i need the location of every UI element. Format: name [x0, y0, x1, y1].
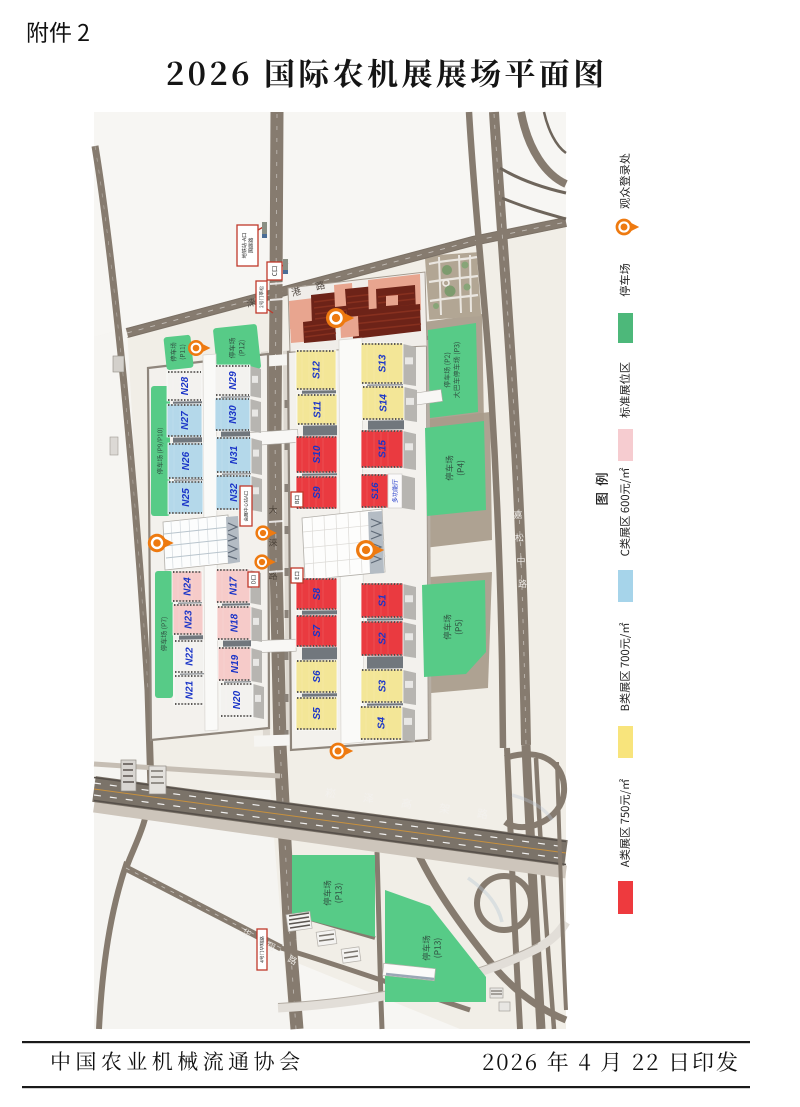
- svg-text:S3: S3: [378, 679, 389, 692]
- svg-text:S5: S5: [312, 707, 323, 720]
- svg-text:S2: S2: [378, 632, 389, 645]
- svg-text:N32: N32: [229, 483, 240, 502]
- svg-text:S4: S4: [377, 716, 388, 729]
- svg-text:S16: S16: [370, 482, 381, 500]
- svg-text:N26: N26: [181, 451, 192, 470]
- svg-text:N28: N28: [180, 376, 191, 395]
- svg-text:N19: N19: [230, 654, 241, 673]
- svg-text:S9: S9: [312, 486, 323, 499]
- svg-text:S1: S1: [378, 594, 389, 607]
- svg-text:N23: N23: [184, 610, 195, 629]
- svg-text:N31: N31: [229, 445, 240, 464]
- svg-text:S13: S13: [378, 354, 389, 372]
- svg-text:N30: N30: [228, 405, 239, 424]
- svg-text:N22: N22: [185, 647, 196, 666]
- svg-text:N25: N25: [181, 488, 192, 507]
- svg-text:S10: S10: [312, 445, 323, 463]
- svg-text:N27: N27: [180, 411, 191, 430]
- svg-text:S6: S6: [312, 670, 323, 683]
- svg-text:S12: S12: [312, 361, 323, 379]
- svg-text:N18: N18: [230, 613, 241, 632]
- svg-text:S11: S11: [313, 401, 324, 418]
- svg-text:S14: S14: [379, 394, 390, 412]
- svg-text:N17: N17: [229, 576, 240, 595]
- svg-text:S8: S8: [312, 587, 323, 600]
- svg-text:S15: S15: [378, 440, 389, 458]
- svg-text:S7: S7: [312, 624, 323, 637]
- svg-text:N21: N21: [185, 680, 196, 699]
- svg-text:N24: N24: [183, 577, 194, 596]
- svg-text:N29: N29: [228, 371, 239, 390]
- svg-text:N20: N20: [232, 690, 243, 709]
